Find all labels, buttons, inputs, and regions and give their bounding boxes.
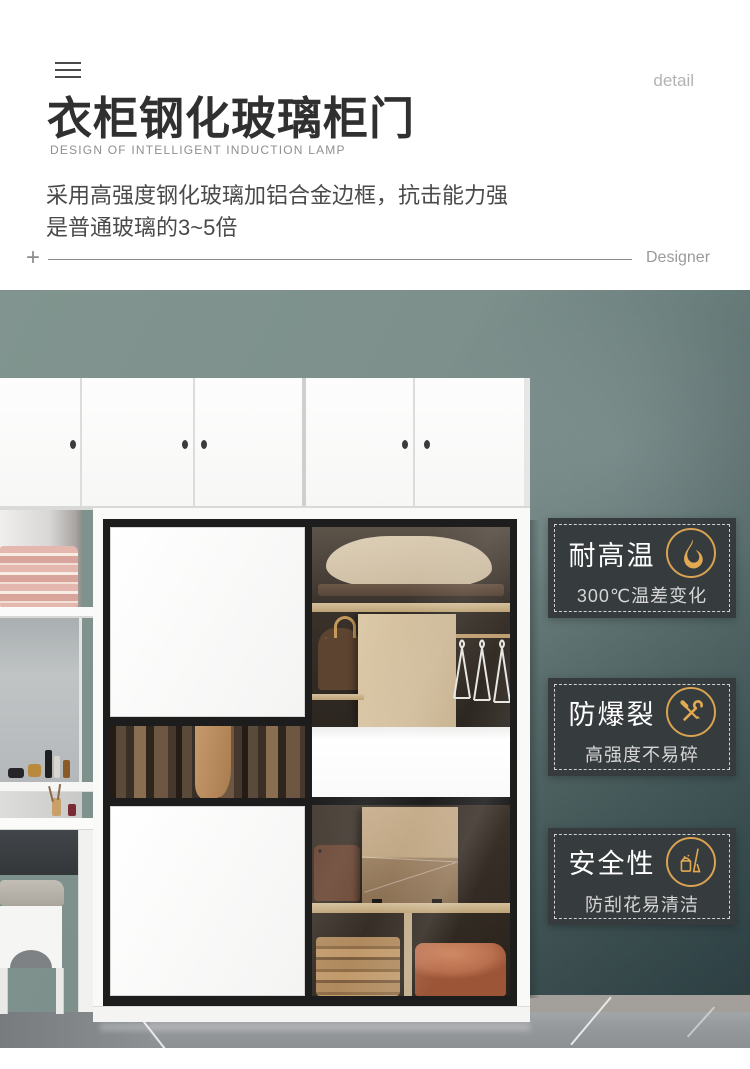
tools-icon	[666, 687, 716, 737]
cabinet-right-edge	[524, 378, 530, 508]
stool-leg	[56, 968, 64, 1014]
floor-reflection	[100, 1023, 530, 1031]
product-detail-page: detail 衣柜钢化玻璃柜门 DESIGN OF INTELLIGENT IN…	[0, 0, 750, 1069]
detail-label: detail	[653, 71, 694, 91]
cabinet-door-knob	[70, 440, 76, 449]
description-line-1: 采用高强度钢化玻璃加铝合金边框，抗击能力强	[46, 180, 508, 212]
hamburger-line	[55, 62, 81, 64]
cosmetic-bottle	[63, 760, 70, 778]
folded-tan-clothes	[316, 937, 400, 996]
header-section: detail 衣柜钢化玻璃柜门 DESIGN OF INTELLIGENT IN…	[0, 0, 750, 290]
bottom-margin	[0, 1048, 750, 1069]
plus-mark: +	[26, 244, 40, 272]
vanity-drawer-dark	[0, 830, 78, 875]
pillow	[326, 536, 492, 588]
page-title: 衣柜钢化玻璃柜门	[47, 82, 415, 147]
designer-label: Designer	[646, 249, 710, 267]
rust-blanket	[415, 943, 506, 996]
badge-title: 耐高温	[569, 534, 656, 573]
cleaning-icon	[666, 837, 716, 887]
feature-badge-anti-burst: 防爆裂 高强度不易碎	[548, 678, 736, 776]
cabinet-door-knob	[182, 440, 188, 449]
badge-subtitle: 300℃温差变化	[577, 582, 707, 608]
cosmetic-jar-gold	[28, 764, 41, 777]
clothes-hangers	[452, 638, 510, 727]
handbag	[318, 628, 360, 690]
perfume-bottle	[68, 804, 76, 816]
cabinet-door-seam	[302, 378, 306, 508]
sliding-door-white-upper	[110, 527, 305, 717]
beige-panel	[358, 614, 456, 727]
badge-title: 防爆裂	[569, 693, 656, 732]
cabinet-door-seam	[80, 378, 82, 508]
vanity-tabletop	[0, 818, 94, 830]
sliding-door-glass-band	[110, 726, 305, 798]
glass-compartment-lower	[312, 805, 510, 996]
folded-pink-clothes	[0, 546, 78, 607]
hamburger-line	[55, 69, 81, 71]
feature-badge-heat-resistant: 耐高温 300℃温差变化	[548, 518, 736, 618]
description-line-2: 是普通玻璃的3~5倍	[46, 212, 508, 244]
page-subtitle: DESIGN OF INTELLIGENT INDUCTION LAMP	[50, 143, 346, 157]
product-photo: 耐高温 300℃温差变化 防爆裂	[0, 290, 750, 1048]
wardrobe-shadow	[530, 520, 540, 998]
cabinet-door-knob	[201, 440, 207, 449]
lower-wood-shelf	[312, 903, 510, 913]
glass-compartment-pillow	[312, 527, 510, 603]
flame-icon	[666, 528, 716, 578]
white-drawer-front	[312, 727, 510, 797]
wood-shelf	[312, 603, 510, 612]
cosmetic-bottle	[45, 750, 52, 778]
cosmetic-bottle	[54, 756, 60, 778]
leaning-mirror	[362, 807, 458, 903]
cabinet-door-seam	[413, 378, 415, 508]
hanging-garment	[195, 726, 231, 798]
mini-shelf	[312, 694, 364, 700]
stool-leg	[0, 968, 8, 1014]
hamburger-line	[55, 76, 81, 78]
folded-blanket	[318, 584, 504, 596]
description-text: 采用高强度钢化玻璃加铝合金边框，抗击能力强 是普通玻璃的3~5倍	[46, 180, 508, 244]
wardrobe-plinth	[93, 1006, 530, 1022]
badge-title: 安全性	[569, 842, 656, 881]
shelf-board	[0, 607, 94, 618]
wall-shading	[520, 550, 750, 1048]
badge-subtitle: 高强度不易碎	[585, 741, 699, 767]
vanity-mirror	[0, 618, 82, 782]
stool-cushion	[0, 880, 64, 906]
wood-divider	[404, 913, 412, 996]
glass-compartment-hangers	[312, 612, 510, 727]
handbag-handle	[334, 616, 356, 638]
cabinet-door-knob	[402, 440, 408, 449]
badge-subtitle: 防刮花易清洁	[585, 891, 699, 917]
cabinet-door-seam	[193, 378, 195, 508]
mirror-reflection-line	[362, 856, 458, 862]
storage-basket	[314, 845, 360, 901]
cabinet-door-knob	[424, 440, 430, 449]
vanity-side-panel	[78, 830, 94, 1012]
divider-line	[48, 259, 632, 260]
feature-badge-safety: 安全性 防刮花	[548, 828, 736, 925]
cosmetic-jar	[8, 768, 24, 778]
sliding-door-white-lower	[110, 806, 305, 996]
vanity-counter	[0, 782, 94, 792]
upper-cabinets	[0, 378, 530, 508]
hamburger-menu-icon	[55, 62, 81, 80]
mirror-reflection-line	[364, 862, 456, 893]
